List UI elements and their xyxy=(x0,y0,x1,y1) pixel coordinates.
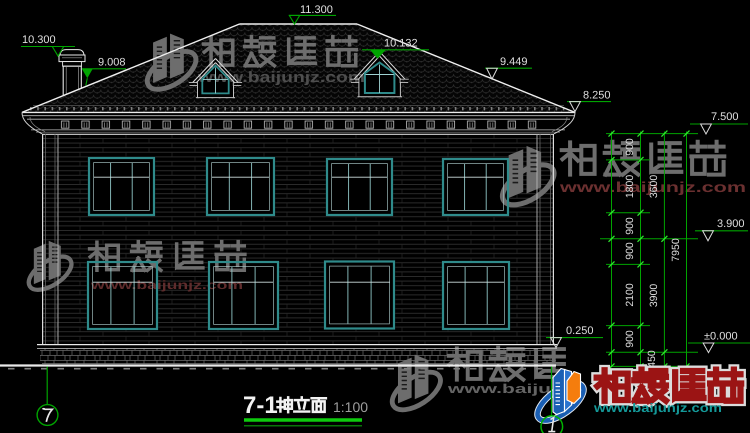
svg-text:8.250: 8.250 xyxy=(583,90,611,102)
svg-text:0.250: 0.250 xyxy=(566,325,594,337)
svg-text:www.baiju: www.baiju xyxy=(446,381,551,396)
svg-text:9.008: 9.008 xyxy=(98,57,126,69)
svg-text:9.449: 9.449 xyxy=(500,56,528,68)
svg-text:1800: 1800 xyxy=(624,175,636,199)
svg-text:900: 900 xyxy=(624,217,636,235)
svg-text:7.500: 7.500 xyxy=(711,111,739,123)
svg-text:3600: 3600 xyxy=(648,175,660,199)
svg-text:www.baijunjz.com: www.baijunjz.com xyxy=(90,278,243,292)
svg-text:7-1: 7-1 xyxy=(243,392,278,419)
svg-text:2100: 2100 xyxy=(624,283,636,307)
svg-text:±0.000: ±0.000 xyxy=(704,331,738,343)
svg-text:10.300: 10.300 xyxy=(22,34,56,46)
svg-text:3900: 3900 xyxy=(648,284,660,308)
svg-text:450: 450 xyxy=(646,350,658,368)
svg-text:7950: 7950 xyxy=(670,238,682,262)
svg-text:www.baijunjz.com: www.baijunjz.com xyxy=(593,401,722,415)
svg-text:1:100: 1:100 xyxy=(333,399,368,415)
svg-text:11.300: 11.300 xyxy=(300,4,333,16)
svg-text:900: 900 xyxy=(624,138,636,156)
svg-text:900: 900 xyxy=(624,330,636,348)
svg-text:3.900: 3.900 xyxy=(717,218,745,230)
svg-text:900: 900 xyxy=(624,242,636,260)
svg-text:10.132: 10.132 xyxy=(384,38,418,50)
